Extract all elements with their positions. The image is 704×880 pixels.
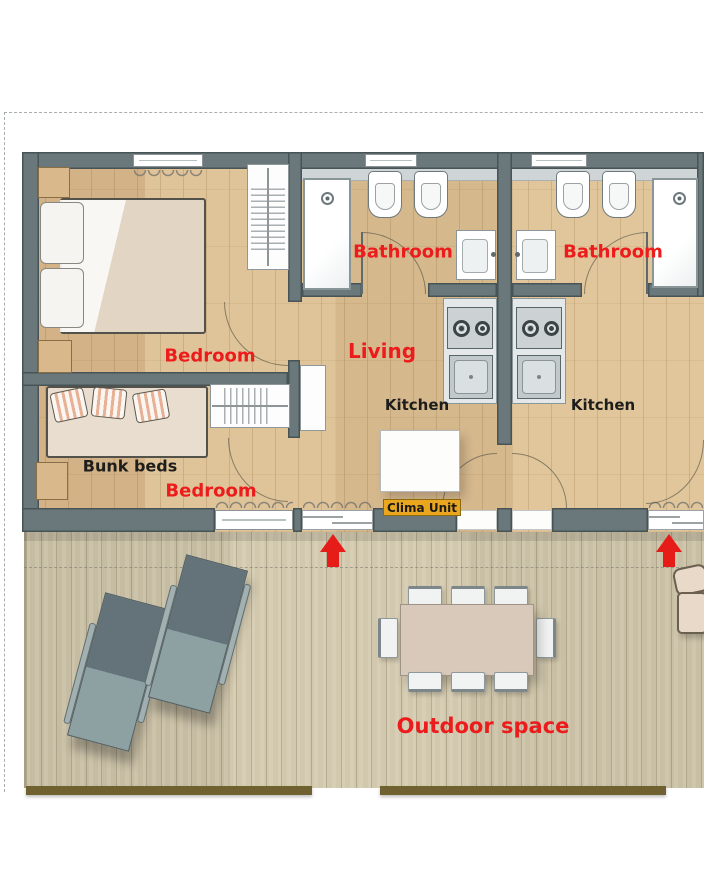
burner-icon	[453, 320, 470, 337]
pillow	[40, 202, 84, 264]
entrance-door-left-unit	[457, 510, 497, 530]
dining-chair	[451, 586, 485, 606]
burner-icon	[522, 320, 539, 337]
cabinet	[36, 462, 68, 500]
burner-icon	[475, 321, 490, 336]
living-label: Living	[348, 339, 416, 363]
dining-chair	[536, 618, 556, 658]
drain-icon	[469, 375, 473, 379]
wall-bottom-c	[552, 508, 648, 532]
bunk-beds-label: Bunk beds	[83, 457, 177, 476]
bathroom-sink	[516, 230, 556, 280]
wall-bottom-pier	[293, 508, 302, 532]
window-bedroom-top	[133, 154, 203, 167]
wall-central	[497, 152, 512, 445]
window-bathroom1	[365, 154, 417, 167]
pillow	[40, 268, 84, 328]
curtain-bedroom-window	[133, 170, 203, 178]
shower-head-icon	[321, 192, 334, 205]
kitchen-label: Kitchen	[385, 396, 449, 414]
dining-chair	[408, 586, 442, 606]
shower-head-icon	[673, 192, 686, 205]
bathroom-label: Bathroom	[563, 242, 663, 263]
striped-pillow	[132, 388, 171, 423]
tall-cabinet	[300, 365, 326, 431]
wardrobe-rail	[212, 405, 288, 407]
wall-top	[22, 152, 704, 169]
entrance-door-right-unit	[512, 510, 552, 530]
dining-chair	[378, 618, 398, 658]
deck-wall-shadow	[24, 532, 704, 541]
wall-bedroom-east	[288, 152, 302, 302]
wall-bottom-center	[497, 508, 512, 532]
drain-icon	[537, 375, 541, 379]
window-bunkroom	[215, 510, 293, 530]
window-bathroom2	[531, 154, 587, 167]
curtain-sliding-door-left	[302, 500, 373, 508]
dining-chair	[408, 672, 442, 692]
faucet-icon	[491, 252, 496, 257]
nightstand	[38, 167, 70, 198]
dining-chair	[451, 672, 485, 692]
plot-boundary-top	[4, 112, 703, 113]
toilet	[368, 171, 402, 218]
deck-edge-right	[380, 786, 666, 795]
bathroom-sink	[456, 230, 496, 280]
nightstand	[38, 340, 72, 373]
toilet	[556, 171, 590, 218]
deck-dashed-line	[24, 567, 704, 568]
plot-boundary-left	[4, 112, 5, 792]
wall-bathroom2-right	[697, 152, 704, 297]
dining-chair	[494, 672, 528, 692]
wall-bathroom1-bottom-b	[428, 283, 497, 297]
striped-pillow	[91, 386, 128, 419]
sliding-door-right-unit	[648, 510, 704, 530]
entrance-arrow-icon	[320, 534, 346, 552]
faucet-icon	[515, 252, 520, 257]
burner-icon	[544, 321, 559, 336]
dining-table	[400, 604, 534, 676]
bedroom-label: Bedroom	[165, 481, 256, 502]
wardrobe-rail	[267, 168, 269, 266]
outdoor-space-label: Outdoor space	[397, 714, 570, 738]
wall-bottom-a	[22, 508, 215, 532]
sliding-door-left-unit	[302, 510, 373, 530]
clima-unit-badge: Clima Unit	[383, 499, 461, 516]
living-table	[380, 430, 460, 492]
deck-edge-left	[26, 786, 312, 795]
dining-chair	[494, 586, 528, 606]
floor-plan: Clima Unit Bathroom Bathroom Living Bedr…	[0, 0, 704, 880]
armchair-seat	[677, 592, 704, 634]
bathroom-label: Bathroom	[353, 242, 453, 263]
entrance-arrow-stem	[327, 551, 339, 567]
entrance-arrow-stem	[663, 551, 675, 567]
bedroom-label: Bedroom	[164, 346, 255, 367]
kitchen-label: Kitchen	[571, 396, 635, 414]
entrance-arrow-icon	[656, 534, 682, 552]
wall-bathroom2-bottom-a	[512, 283, 582, 297]
bidet	[414, 171, 448, 218]
bidet	[602, 171, 636, 218]
